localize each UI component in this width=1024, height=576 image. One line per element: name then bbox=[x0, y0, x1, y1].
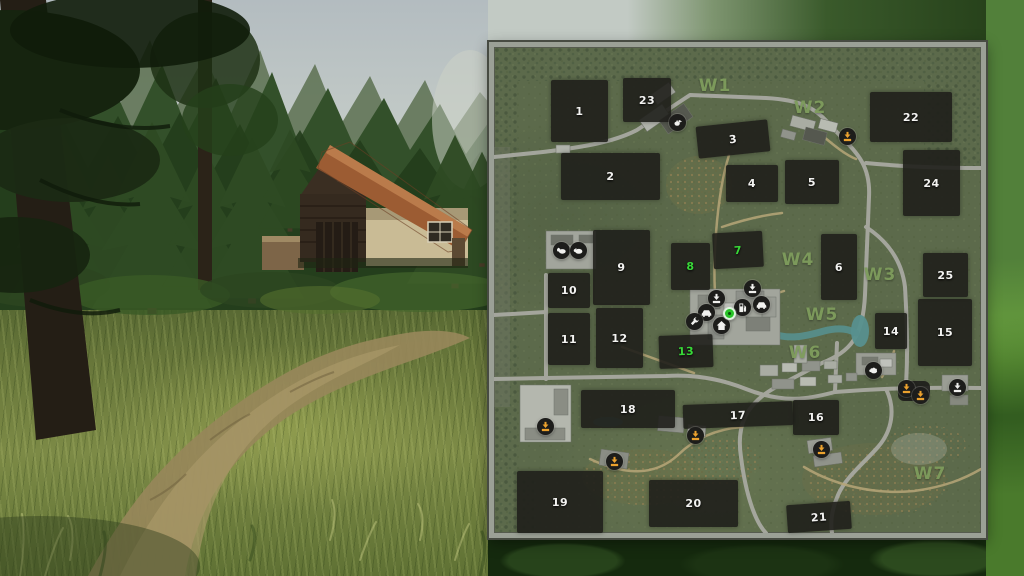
field-13[interactable]: 13 bbox=[658, 334, 713, 369]
zone-label-w5: W5 bbox=[806, 305, 839, 325]
sell-point-icon[interactable] bbox=[537, 418, 554, 435]
field-7[interactable]: 7 bbox=[712, 231, 764, 270]
field-number: 21 bbox=[810, 510, 827, 524]
sell-point-icon[interactable] bbox=[744, 280, 761, 297]
map-overlay: 1234567891011121314151617181920212223242… bbox=[494, 47, 981, 533]
field-number: 16 bbox=[808, 411, 824, 424]
field-24[interactable]: 24 bbox=[903, 150, 960, 216]
field-number: 18 bbox=[620, 403, 636, 416]
field-15[interactable]: 15 bbox=[918, 299, 972, 366]
field-number: 6 bbox=[835, 261, 843, 274]
field-20[interactable]: 20 bbox=[649, 480, 738, 527]
field-19[interactable]: 19 bbox=[517, 471, 603, 533]
field-14[interactable]: 14 bbox=[875, 313, 907, 349]
field-number: 19 bbox=[552, 496, 568, 509]
zone-label-w4: W4 bbox=[782, 250, 815, 270]
field-number: 9 bbox=[617, 261, 625, 274]
field-number: 20 bbox=[685, 497, 701, 510]
field-number: 15 bbox=[937, 326, 953, 339]
field-11[interactable]: 11 bbox=[548, 313, 590, 365]
pig-icon[interactable] bbox=[570, 242, 587, 259]
field-number: 23 bbox=[639, 94, 655, 107]
zone-label-w6: W6 bbox=[789, 343, 822, 363]
field-4[interactable]: 4 bbox=[726, 165, 778, 202]
field-17[interactable]: 17 bbox=[683, 401, 794, 429]
field-number: 14 bbox=[883, 325, 899, 338]
fuel-icon[interactable] bbox=[734, 299, 751, 316]
wrench-icon[interactable] bbox=[686, 313, 703, 330]
sell-point-icon[interactable] bbox=[949, 379, 966, 396]
field-number: 8 bbox=[686, 260, 694, 273]
field-number: 1 bbox=[575, 105, 583, 118]
field-number: 17 bbox=[730, 408, 747, 422]
field-number: 5 bbox=[808, 176, 816, 189]
field-number: 13 bbox=[678, 345, 695, 359]
field-12[interactable]: 12 bbox=[596, 308, 643, 368]
sheep-icon[interactable] bbox=[865, 362, 882, 379]
sell-point-icon[interactable] bbox=[839, 128, 856, 145]
zone-label-w2: W2 bbox=[794, 98, 827, 118]
zone-label-w1: W1 bbox=[699, 76, 732, 96]
field-22[interactable]: 22 bbox=[870, 92, 952, 142]
player-marker bbox=[723, 307, 736, 320]
cow-icon[interactable] bbox=[553, 242, 570, 259]
field-8[interactable]: 8 bbox=[671, 243, 710, 290]
field-21[interactable]: 21 bbox=[786, 501, 852, 533]
field-25[interactable]: 25 bbox=[923, 253, 968, 297]
zone-label-w7: W7 bbox=[914, 464, 947, 484]
field-number: 25 bbox=[937, 269, 953, 282]
field-3[interactable]: 3 bbox=[696, 119, 771, 158]
field-number: 4 bbox=[748, 177, 756, 190]
field-9[interactable]: 9 bbox=[593, 230, 650, 305]
sell-point-icon[interactable] bbox=[606, 453, 623, 470]
field-5[interactable]: 5 bbox=[785, 160, 839, 204]
field-number: 3 bbox=[728, 132, 737, 146]
field-23[interactable]: 23 bbox=[623, 78, 671, 122]
field-10[interactable]: 10 bbox=[548, 273, 590, 308]
car-icon[interactable] bbox=[753, 296, 770, 313]
sell-point-icon[interactable] bbox=[912, 387, 929, 404]
field-1[interactable]: 1 bbox=[551, 80, 608, 142]
field-number: 11 bbox=[561, 333, 577, 346]
field-number: 12 bbox=[611, 332, 627, 345]
chicken-icon[interactable] bbox=[669, 114, 686, 131]
field-number: 22 bbox=[903, 111, 919, 124]
sell-point-icon[interactable] bbox=[813, 441, 830, 458]
field-16[interactable]: 16 bbox=[793, 400, 839, 435]
field-number: 2 bbox=[606, 170, 614, 183]
field-number: 7 bbox=[734, 243, 743, 256]
field-2[interactable]: 2 bbox=[561, 153, 660, 200]
grass-tufts bbox=[0, 500, 485, 576]
zone-label-w3: W3 bbox=[864, 265, 897, 285]
field-18[interactable]: 18 bbox=[581, 390, 675, 428]
field-number: 10 bbox=[561, 284, 577, 297]
field-number: 24 bbox=[923, 177, 939, 190]
field-6[interactable]: 6 bbox=[821, 234, 857, 300]
sell-point-icon[interactable] bbox=[687, 427, 704, 444]
minimap-panel[interactable]: 1234567891011121314151617181920212223242… bbox=[489, 42, 986, 538]
